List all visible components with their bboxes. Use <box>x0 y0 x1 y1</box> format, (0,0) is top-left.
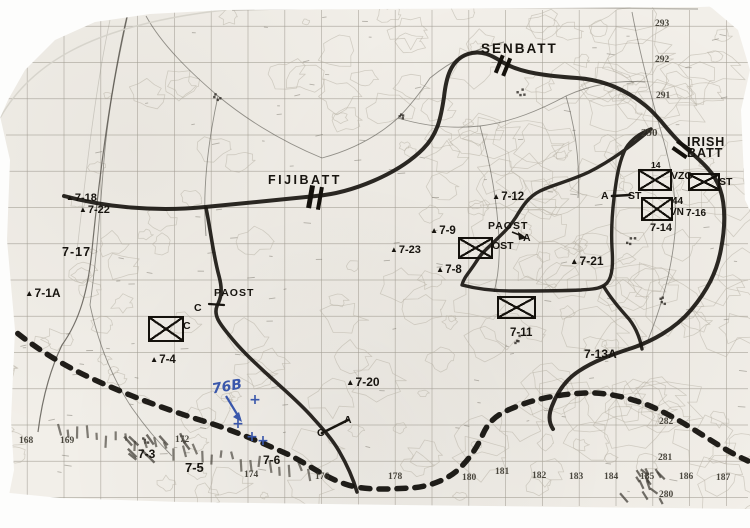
label-number-44: 44 <box>672 197 683 207</box>
topographic-map: FIJIBATTSENBATTIRISHBATTPAOSTAOSTPAOSTCC… <box>0 0 750 528</box>
triangle-marker-icon: ▲ <box>390 246 398 254</box>
grid-number-178: 178 <box>388 473 402 483</box>
label-company-c-west-2: C <box>183 321 191 332</box>
triangle-marker-icon: ▲ <box>570 257 579 266</box>
label-position-7-1A: ▲7-1A <box>25 287 61 299</box>
grid-number-181: 181 <box>495 468 509 478</box>
triangle-marker-icon: ▲ <box>150 356 158 364</box>
label-paost-west: PAOST <box>214 288 254 299</box>
label-senbatt: SENBATT <box>481 42 558 56</box>
label-position-7-12: ▲7-12 <box>492 192 524 204</box>
label-position-7-8: ▲7-8 <box>436 265 462 277</box>
triangle-marker-icon: ▲ <box>436 266 444 274</box>
grid-number-187: 187 <box>716 474 730 484</box>
infantry-unit-symbol-st-box-symbol <box>688 173 720 191</box>
grid-number-180: 180 <box>462 474 476 484</box>
label-position-7-16: 7-16 <box>686 209 706 219</box>
grid-number-174: 174 <box>244 471 258 481</box>
triangle-marker-icon: ▲ <box>430 227 438 235</box>
infantry-unit-symbol-ost-box <box>458 237 493 259</box>
label-paost-east: PAOST <box>488 221 528 232</box>
label-company-c-tick: C <box>317 428 325 439</box>
label-irishbatt-line2: BATT <box>687 147 723 160</box>
grid-number-184: 184 <box>604 473 618 483</box>
blue-cross-marker-3: + <box>246 430 258 444</box>
label-position-7-20: ▲7-20 <box>346 376 380 388</box>
label-position-7-11: 7-11 <box>510 328 532 340</box>
blue-cross-marker-2: + <box>232 417 244 431</box>
grid-number-185: 185 <box>640 473 654 483</box>
triangle-marker-icon: ▲ <box>492 193 500 201</box>
label-company-a-tick: A <box>344 415 352 426</box>
label-position-7-13A: 7-13A <box>584 348 617 360</box>
grid-number-280: 280 <box>659 491 673 501</box>
label-position-7-5: 7-5 <box>185 461 204 474</box>
infantry-unit-symbol-vzg-box <box>638 169 672 191</box>
grid-number-186: 186 <box>679 473 693 483</box>
scanned-map-page: FIJIBATTSENBATTIRISHBATTPAOSTAOSTPAOSTCC… <box>0 0 750 528</box>
triangle-marker-icon: ▲ <box>79 206 87 214</box>
label-st-box: ST <box>719 177 732 188</box>
label-ost: OST <box>492 241 514 252</box>
grid-number-183: 183 <box>569 473 583 483</box>
triangle-marker-icon: ▲ <box>346 378 355 387</box>
grid-number-282: 282 <box>659 418 673 428</box>
grid-number-169: 169 <box>60 437 74 447</box>
infantry-unit-symbol-c-box <box>148 316 184 342</box>
label-position-7-9: ▲7-9 <box>430 226 456 238</box>
grid-number-293: 293 <box>655 20 669 30</box>
grid-number-291: 291 <box>656 92 670 102</box>
label-position-7-4: ▲7-4 <box>150 355 176 367</box>
label-position-7-21: ▲7-21 <box>570 255 604 267</box>
grid-number-292: 292 <box>655 56 669 66</box>
infantry-unit-symbol-a-box <box>497 296 536 319</box>
blue-annotation-layer <box>0 0 750 528</box>
label-position-7-17: 7-17 <box>62 246 91 259</box>
grid-number-182: 182 <box>532 472 546 482</box>
label-position-7-22: ▲7-22 <box>79 205 110 216</box>
triangle-marker-icon: ▲ <box>66 194 74 202</box>
grid-number-281: 281 <box>658 454 672 464</box>
label-position-7-3: 7-3 <box>138 448 155 460</box>
label-company-a-boundary: A <box>601 191 609 202</box>
grid-number-168: 168 <box>19 437 33 447</box>
label-position-7-23: ▲7-23 <box>390 245 421 256</box>
label-position-7-14: 7-14 <box>650 223 672 234</box>
blue-cross-marker-1: + <box>249 393 261 407</box>
label-position-7-6: 7-6 <box>263 454 280 466</box>
blue-cross-marker-4: + <box>257 434 269 448</box>
grid-number-172: 172 <box>175 436 189 446</box>
grid-number-176: 176 <box>315 473 329 483</box>
label-company-c-west-1: C <box>194 303 202 314</box>
triangle-marker-icon: ▲ <box>25 289 34 298</box>
label-position-7-18: ▲7-18 <box>66 193 97 204</box>
grid-number-290: 290 <box>641 128 658 139</box>
label-company-st-boundary: ST <box>628 191 641 202</box>
label-fijibatt: FIJIBATT <box>268 174 342 187</box>
label-company-a-east: A <box>523 233 531 244</box>
infantry-unit-symbol-44-vn-box <box>641 197 673 221</box>
